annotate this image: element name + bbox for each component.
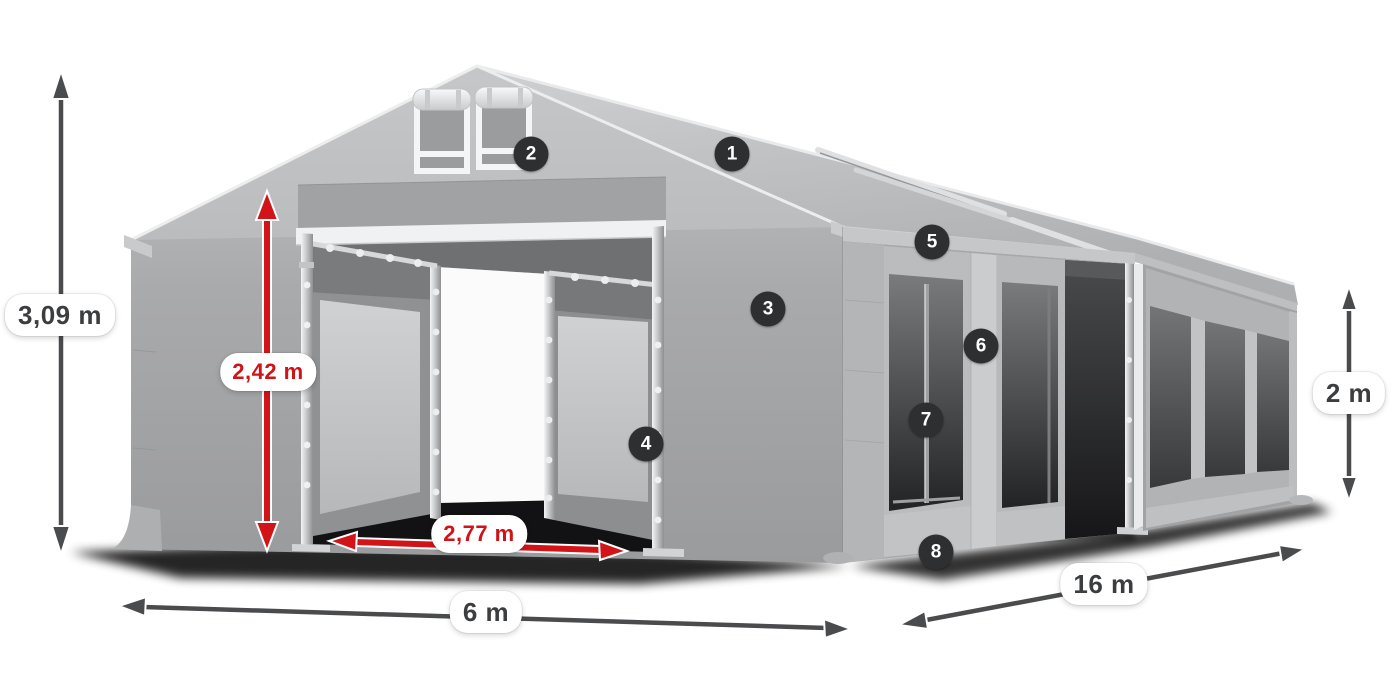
dimension-label-front-width: 6 m: [450, 591, 522, 633]
dimension-label-entrance-height: 2,42 m: [220, 353, 316, 391]
side-wall-near: [823, 227, 1148, 564]
hotspot-badge-8: 8: [919, 535, 954, 570]
front-entrance: [292, 220, 684, 557]
tent-illustration: [0, 0, 1400, 700]
hotspot-badge-4: 4: [629, 427, 664, 462]
hotspot-badge-3: 3: [751, 292, 786, 327]
dimension-label-total-height: 3,09 m: [5, 294, 115, 336]
dimension-label-side-length: 16 m: [1060, 563, 1147, 605]
left-door-panel: [308, 243, 441, 537]
hotspot-badge-6: 6: [964, 329, 999, 364]
hotspot-badge-1: 1: [715, 137, 750, 172]
dimension-label-side-wall-height: 2 m: [1313, 372, 1385, 414]
dimension-label-entrance-width: 2,77 m: [431, 515, 527, 553]
right-door-panel: [544, 271, 658, 541]
hotspot-badge-7: 7: [909, 403, 944, 438]
hotspot-badge-5: 5: [915, 225, 950, 260]
hotspot-badge-2: 2: [514, 137, 549, 172]
tent-dimension-diagram: 3,09 m 2,42 m 2,77 m 6 m 16 m 2 m 1 2 3 …: [0, 0, 1400, 700]
